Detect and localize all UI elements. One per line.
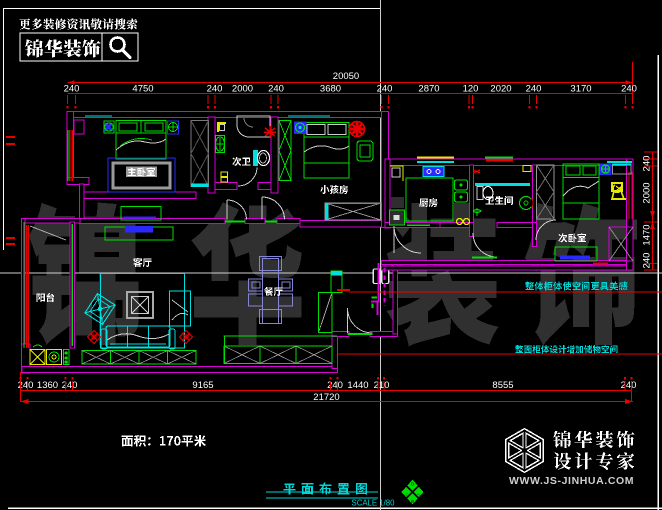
- svg-text:1440: 1440: [347, 380, 368, 391]
- svg-text:4750: 4750: [132, 84, 153, 95]
- svg-text:240: 240: [377, 84, 393, 95]
- svg-text:240: 240: [621, 84, 637, 95]
- svg-text:2020: 2020: [490, 84, 511, 95]
- svg-text:9165: 9165: [192, 380, 213, 391]
- svg-text:240: 240: [64, 84, 80, 95]
- svg-text:240: 240: [621, 380, 637, 391]
- svg-text:8555: 8555: [492, 380, 513, 391]
- svg-text:240: 240: [642, 156, 653, 172]
- svg-text:2000: 2000: [642, 182, 653, 203]
- svg-text:1360: 1360: [37, 380, 58, 391]
- svg-text:A: A: [417, 492, 420, 497]
- svg-text:2000: 2000: [232, 84, 253, 95]
- svg-text:20050: 20050: [333, 71, 359, 82]
- svg-text:240: 240: [526, 84, 542, 95]
- svg-text:SCALE 1/80: SCALE 1/80: [352, 499, 396, 508]
- svg-text:240: 240: [327, 380, 343, 391]
- svg-text:240: 240: [62, 380, 78, 391]
- svg-text:240: 240: [207, 84, 223, 95]
- svg-text:3680: 3680: [320, 84, 341, 95]
- svg-text:WWW.JS-JINHUA.COM: WWW.JS-JINHUA.COM: [509, 475, 634, 487]
- svg-text:3170: 3170: [570, 84, 591, 95]
- svg-text:B: B: [411, 499, 414, 504]
- svg-text:120: 120: [463, 84, 479, 95]
- svg-text:240: 240: [268, 84, 284, 95]
- svg-text:240: 240: [18, 380, 34, 391]
- svg-text:240: 240: [642, 253, 653, 269]
- svg-text:2870: 2870: [418, 84, 439, 95]
- svg-text:210: 210: [374, 380, 390, 391]
